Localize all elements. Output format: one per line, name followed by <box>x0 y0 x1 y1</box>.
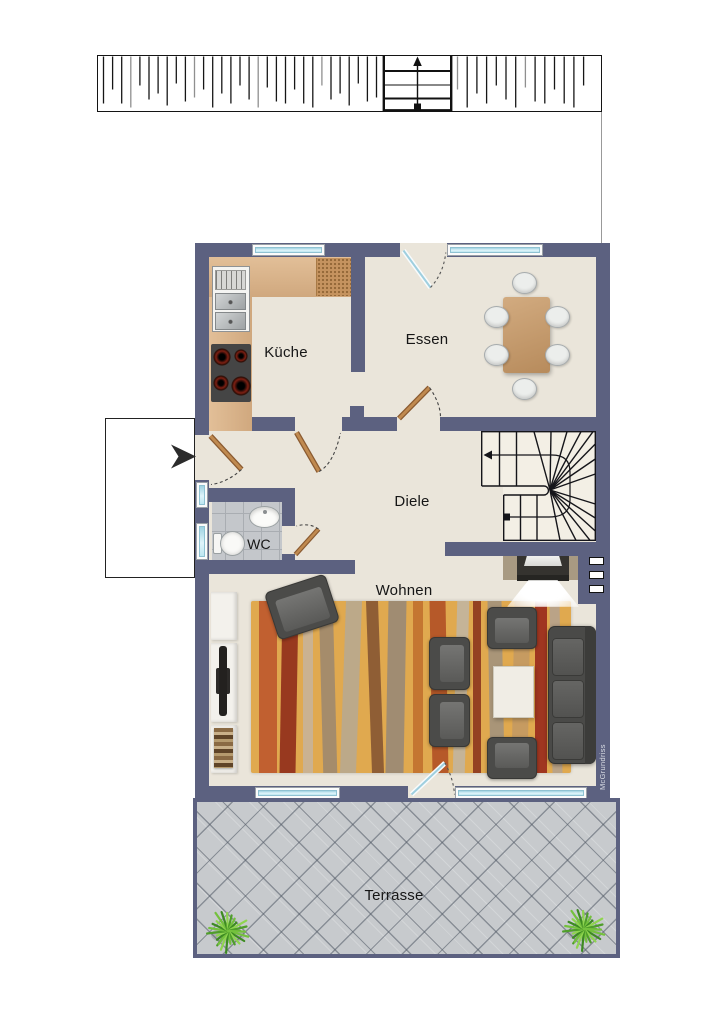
armchair <box>487 737 537 779</box>
wall-niche-square <box>589 571 604 579</box>
wall-niche-square <box>589 557 604 565</box>
wc-sink <box>249 506 280 528</box>
room-label-diele: Diele <box>372 493 452 510</box>
dining-chair <box>484 344 509 366</box>
floor-plan: Küche Essen Diele WC Wohnen Terrasse McG… <box>0 0 723 1023</box>
coffee-table <box>493 666 534 718</box>
sink-basin-large <box>215 312 246 330</box>
room-label-terrasse: Terrasse <box>350 887 438 904</box>
room-label-wc: WC <box>239 536 279 552</box>
opening-wc-door <box>282 526 295 554</box>
tv-sideboard <box>211 592 237 640</box>
wall-niche-square <box>589 585 604 593</box>
watermark: McGrundriss <box>598 736 607 790</box>
wall-hall-kitchen <box>252 417 295 431</box>
stair-floor-upper <box>481 431 596 487</box>
window-left-lower <box>196 523 208 560</box>
room-label-kueche: Küche <box>246 344 326 361</box>
opening-kitchen-door <box>295 417 342 431</box>
opening-hall-dining-door <box>397 417 440 431</box>
opening-dining-door <box>400 243 447 257</box>
sink-basin-small <box>215 293 246 310</box>
opening-entry <box>195 435 209 480</box>
room-label-wohnen: Wohnen <box>358 582 450 599</box>
terrace <box>193 798 620 958</box>
armchair <box>429 637 470 690</box>
dining-table <box>503 297 550 373</box>
wall-kitchen-dining <box>351 257 365 372</box>
armchair <box>429 694 470 747</box>
kitchen-sink <box>212 266 250 332</box>
connector-line <box>601 112 602 244</box>
wall-living-top <box>195 560 355 574</box>
stair-floor-lower <box>503 487 596 541</box>
dish-rack <box>215 270 246 290</box>
balcony-strip <box>97 55 602 112</box>
sofa <box>548 626 596 764</box>
window-top-kitchen <box>252 244 325 256</box>
dining-chair <box>545 306 570 328</box>
window-left-upper <box>196 482 208 508</box>
wall-right <box>596 243 610 800</box>
wall-hall-mid <box>342 417 397 431</box>
dining-chair <box>545 344 570 366</box>
window-top-dining <box>447 244 543 256</box>
dining-chair <box>484 306 509 328</box>
book-stack <box>214 728 233 768</box>
stove <box>211 344 251 402</box>
dining-chair <box>512 272 537 294</box>
tv <box>219 646 227 716</box>
room-label-essen: Essen <box>387 331 467 348</box>
porch-outline <box>105 418 195 578</box>
dining-chair <box>512 378 537 400</box>
wall-wc-right <box>282 488 295 526</box>
armchair <box>487 607 537 649</box>
wall-left <box>195 243 209 800</box>
wall-hall-dining <box>440 417 596 431</box>
cutting-board <box>316 258 353 296</box>
